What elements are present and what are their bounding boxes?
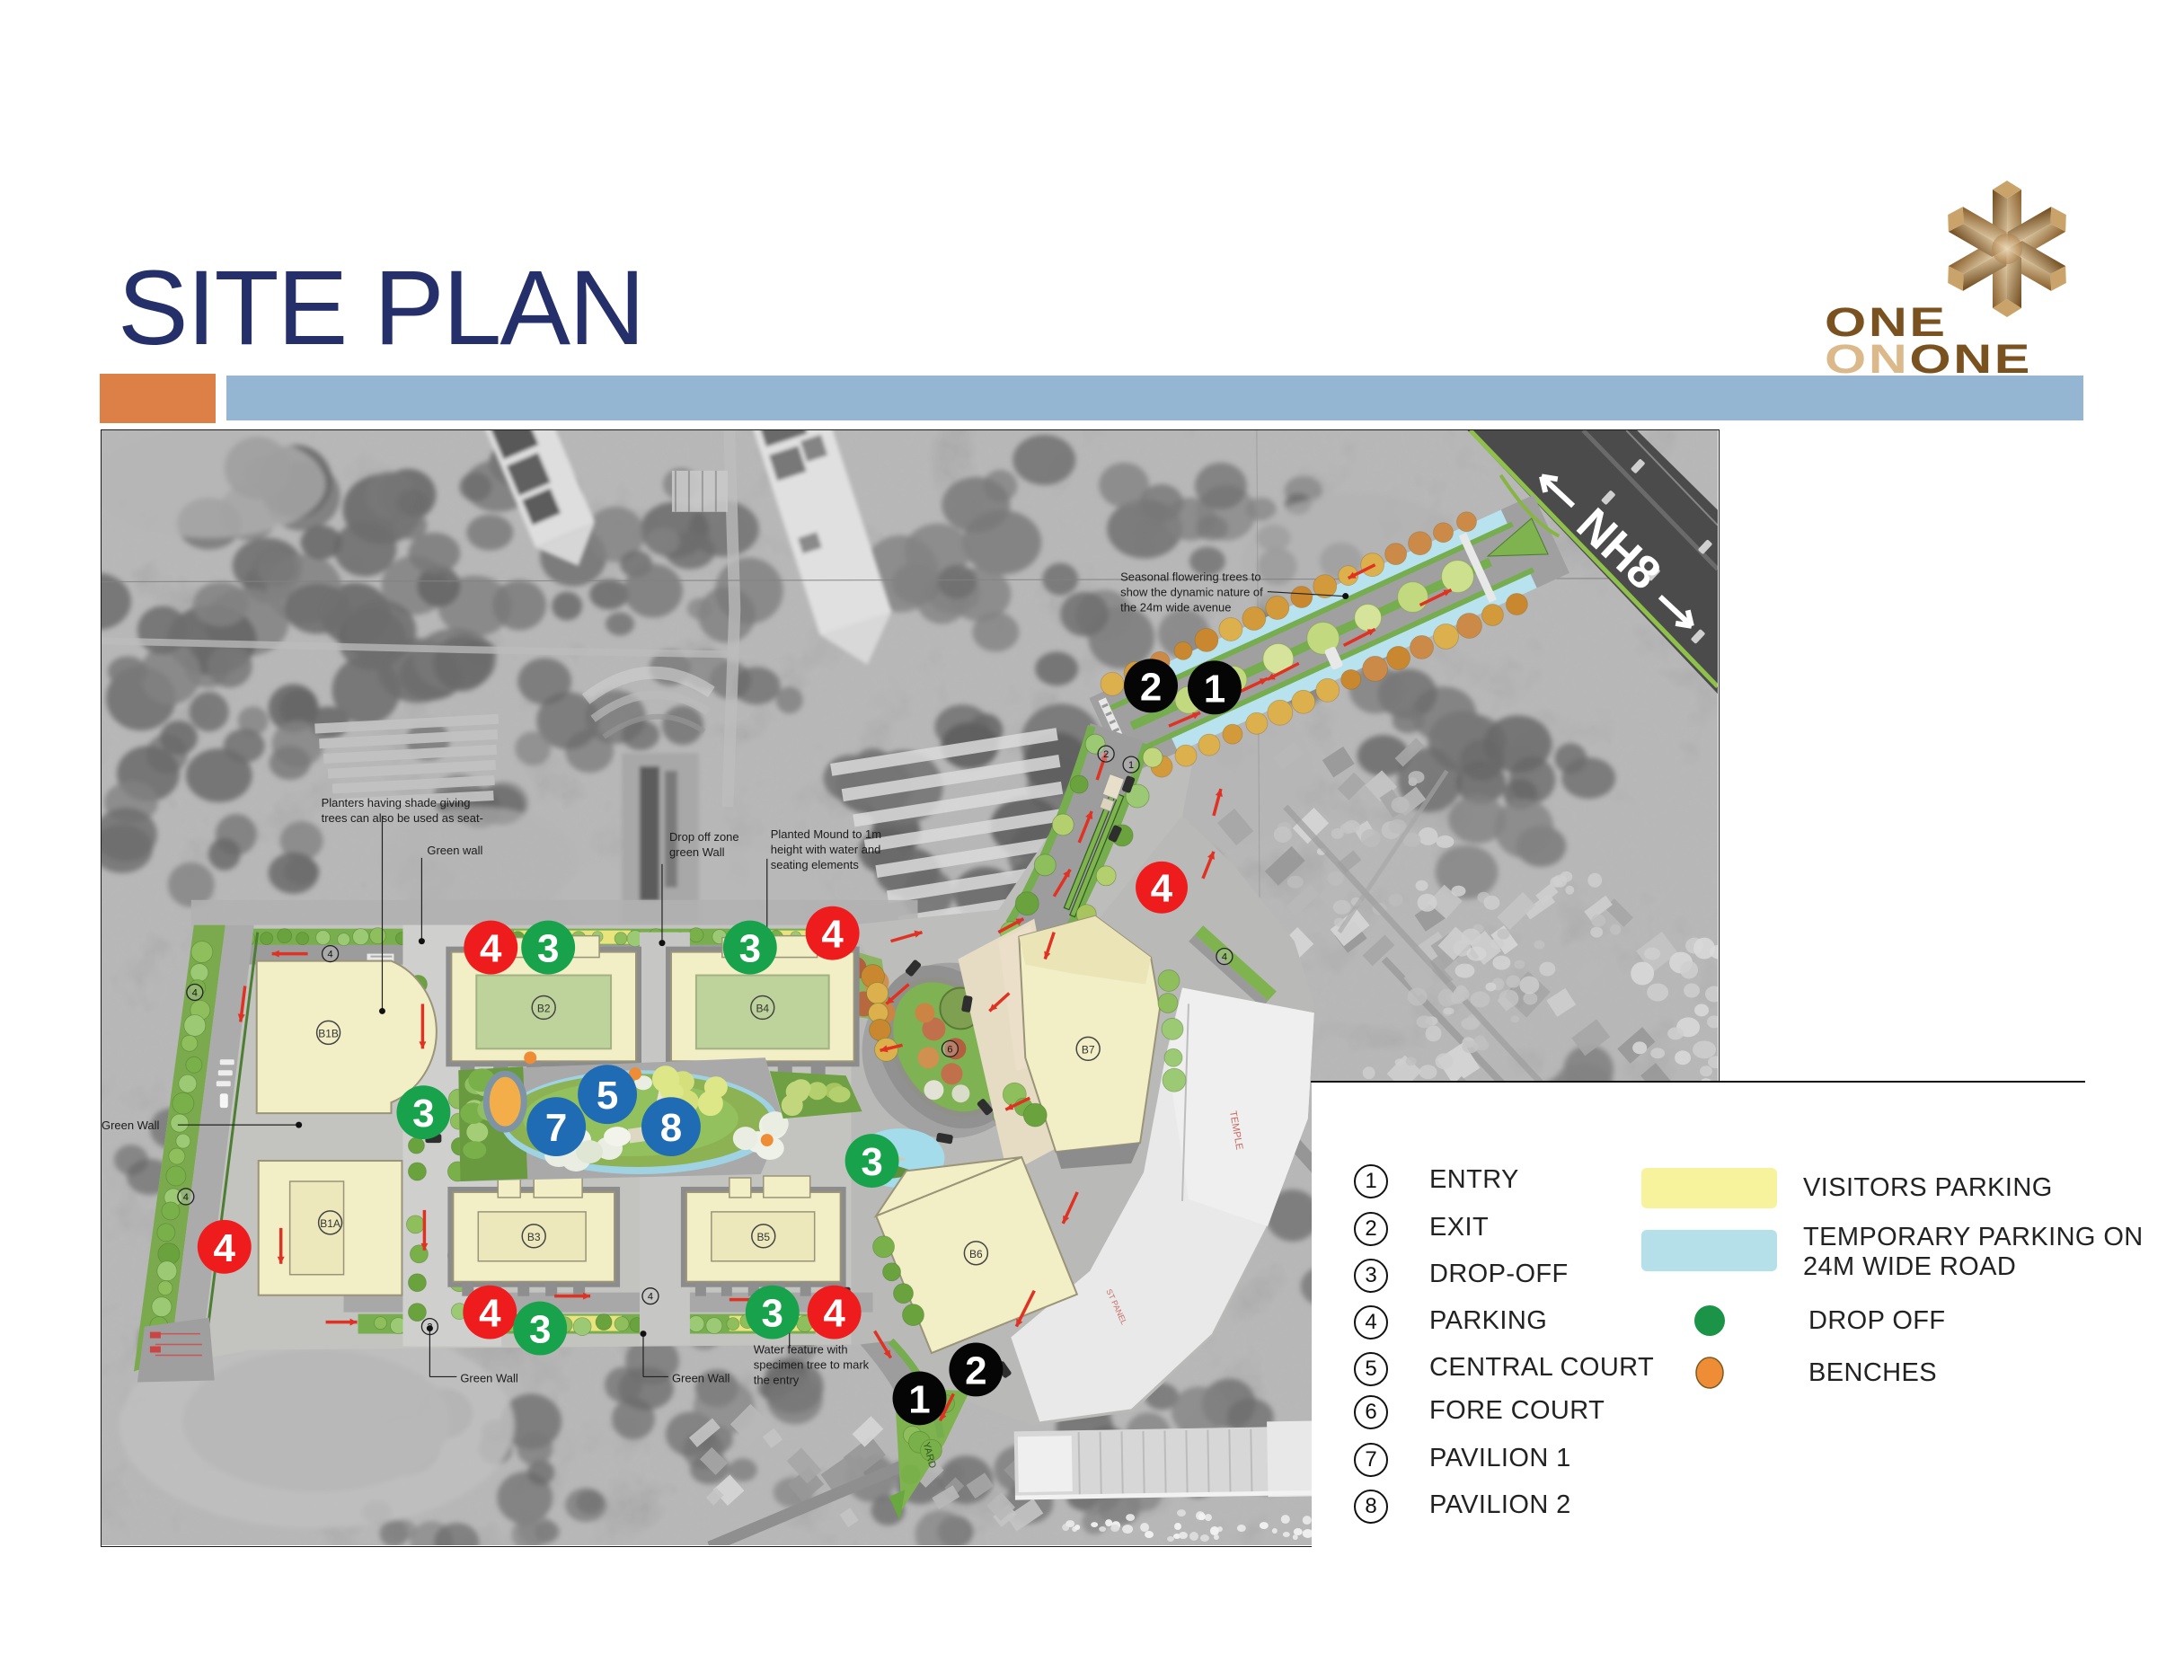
svg-text:3: 3 [861, 1140, 882, 1184]
svg-text:B7: B7 [1082, 1043, 1095, 1056]
svg-text:8: 8 [660, 1106, 682, 1150]
svg-text:3: 3 [537, 927, 559, 971]
svg-text:2: 2 [965, 1348, 986, 1393]
svg-text:Green wall: Green wall [427, 844, 482, 857]
svg-text:B4: B4 [756, 1002, 769, 1014]
svg-text:3: 3 [412, 1092, 434, 1136]
svg-text:4: 4 [821, 913, 844, 957]
svg-text:Green Wall: Green Wall [102, 1119, 160, 1132]
svg-text:B3: B3 [527, 1231, 541, 1243]
svg-text:B1A: B1A [320, 1217, 340, 1230]
svg-text:3: 3 [529, 1308, 551, 1352]
svg-text:B6: B6 [969, 1248, 983, 1260]
svg-text:4: 4 [480, 927, 502, 971]
svg-text:B5: B5 [756, 1231, 770, 1243]
svg-text:B2: B2 [537, 1002, 551, 1014]
svg-text:4: 4 [192, 987, 198, 998]
svg-text:4: 4 [479, 1292, 501, 1336]
svg-text:Planters having shade givingtr: Planters having shade givingtrees can al… [322, 796, 483, 825]
svg-text:4: 4 [823, 1292, 845, 1336]
svg-text:4: 4 [183, 1192, 189, 1203]
svg-text:1: 1 [1128, 760, 1134, 771]
svg-text:6: 6 [947, 1044, 952, 1055]
svg-text:Green Wall: Green Wall [672, 1371, 730, 1384]
svg-text:4: 4 [1151, 867, 1173, 911]
svg-text:4: 4 [648, 1292, 653, 1303]
svg-text:3: 3 [762, 1292, 783, 1336]
svg-text:2: 2 [1140, 665, 1162, 709]
svg-text:5: 5 [597, 1074, 618, 1118]
svg-text:Green Wall: Green Wall [460, 1371, 518, 1384]
svg-text:1: 1 [908, 1377, 930, 1421]
svg-text:1: 1 [1204, 667, 1225, 711]
svg-text:7: 7 [545, 1106, 567, 1150]
svg-text:4: 4 [1222, 952, 1227, 963]
svg-text:4: 4 [214, 1226, 236, 1270]
svg-text:4: 4 [328, 950, 333, 960]
svg-text:3: 3 [739, 927, 761, 971]
svg-text:B1B: B1B [318, 1027, 339, 1039]
svg-text:ONONE: ONONE [1825, 337, 2032, 382]
svg-text:2: 2 [1103, 749, 1109, 760]
